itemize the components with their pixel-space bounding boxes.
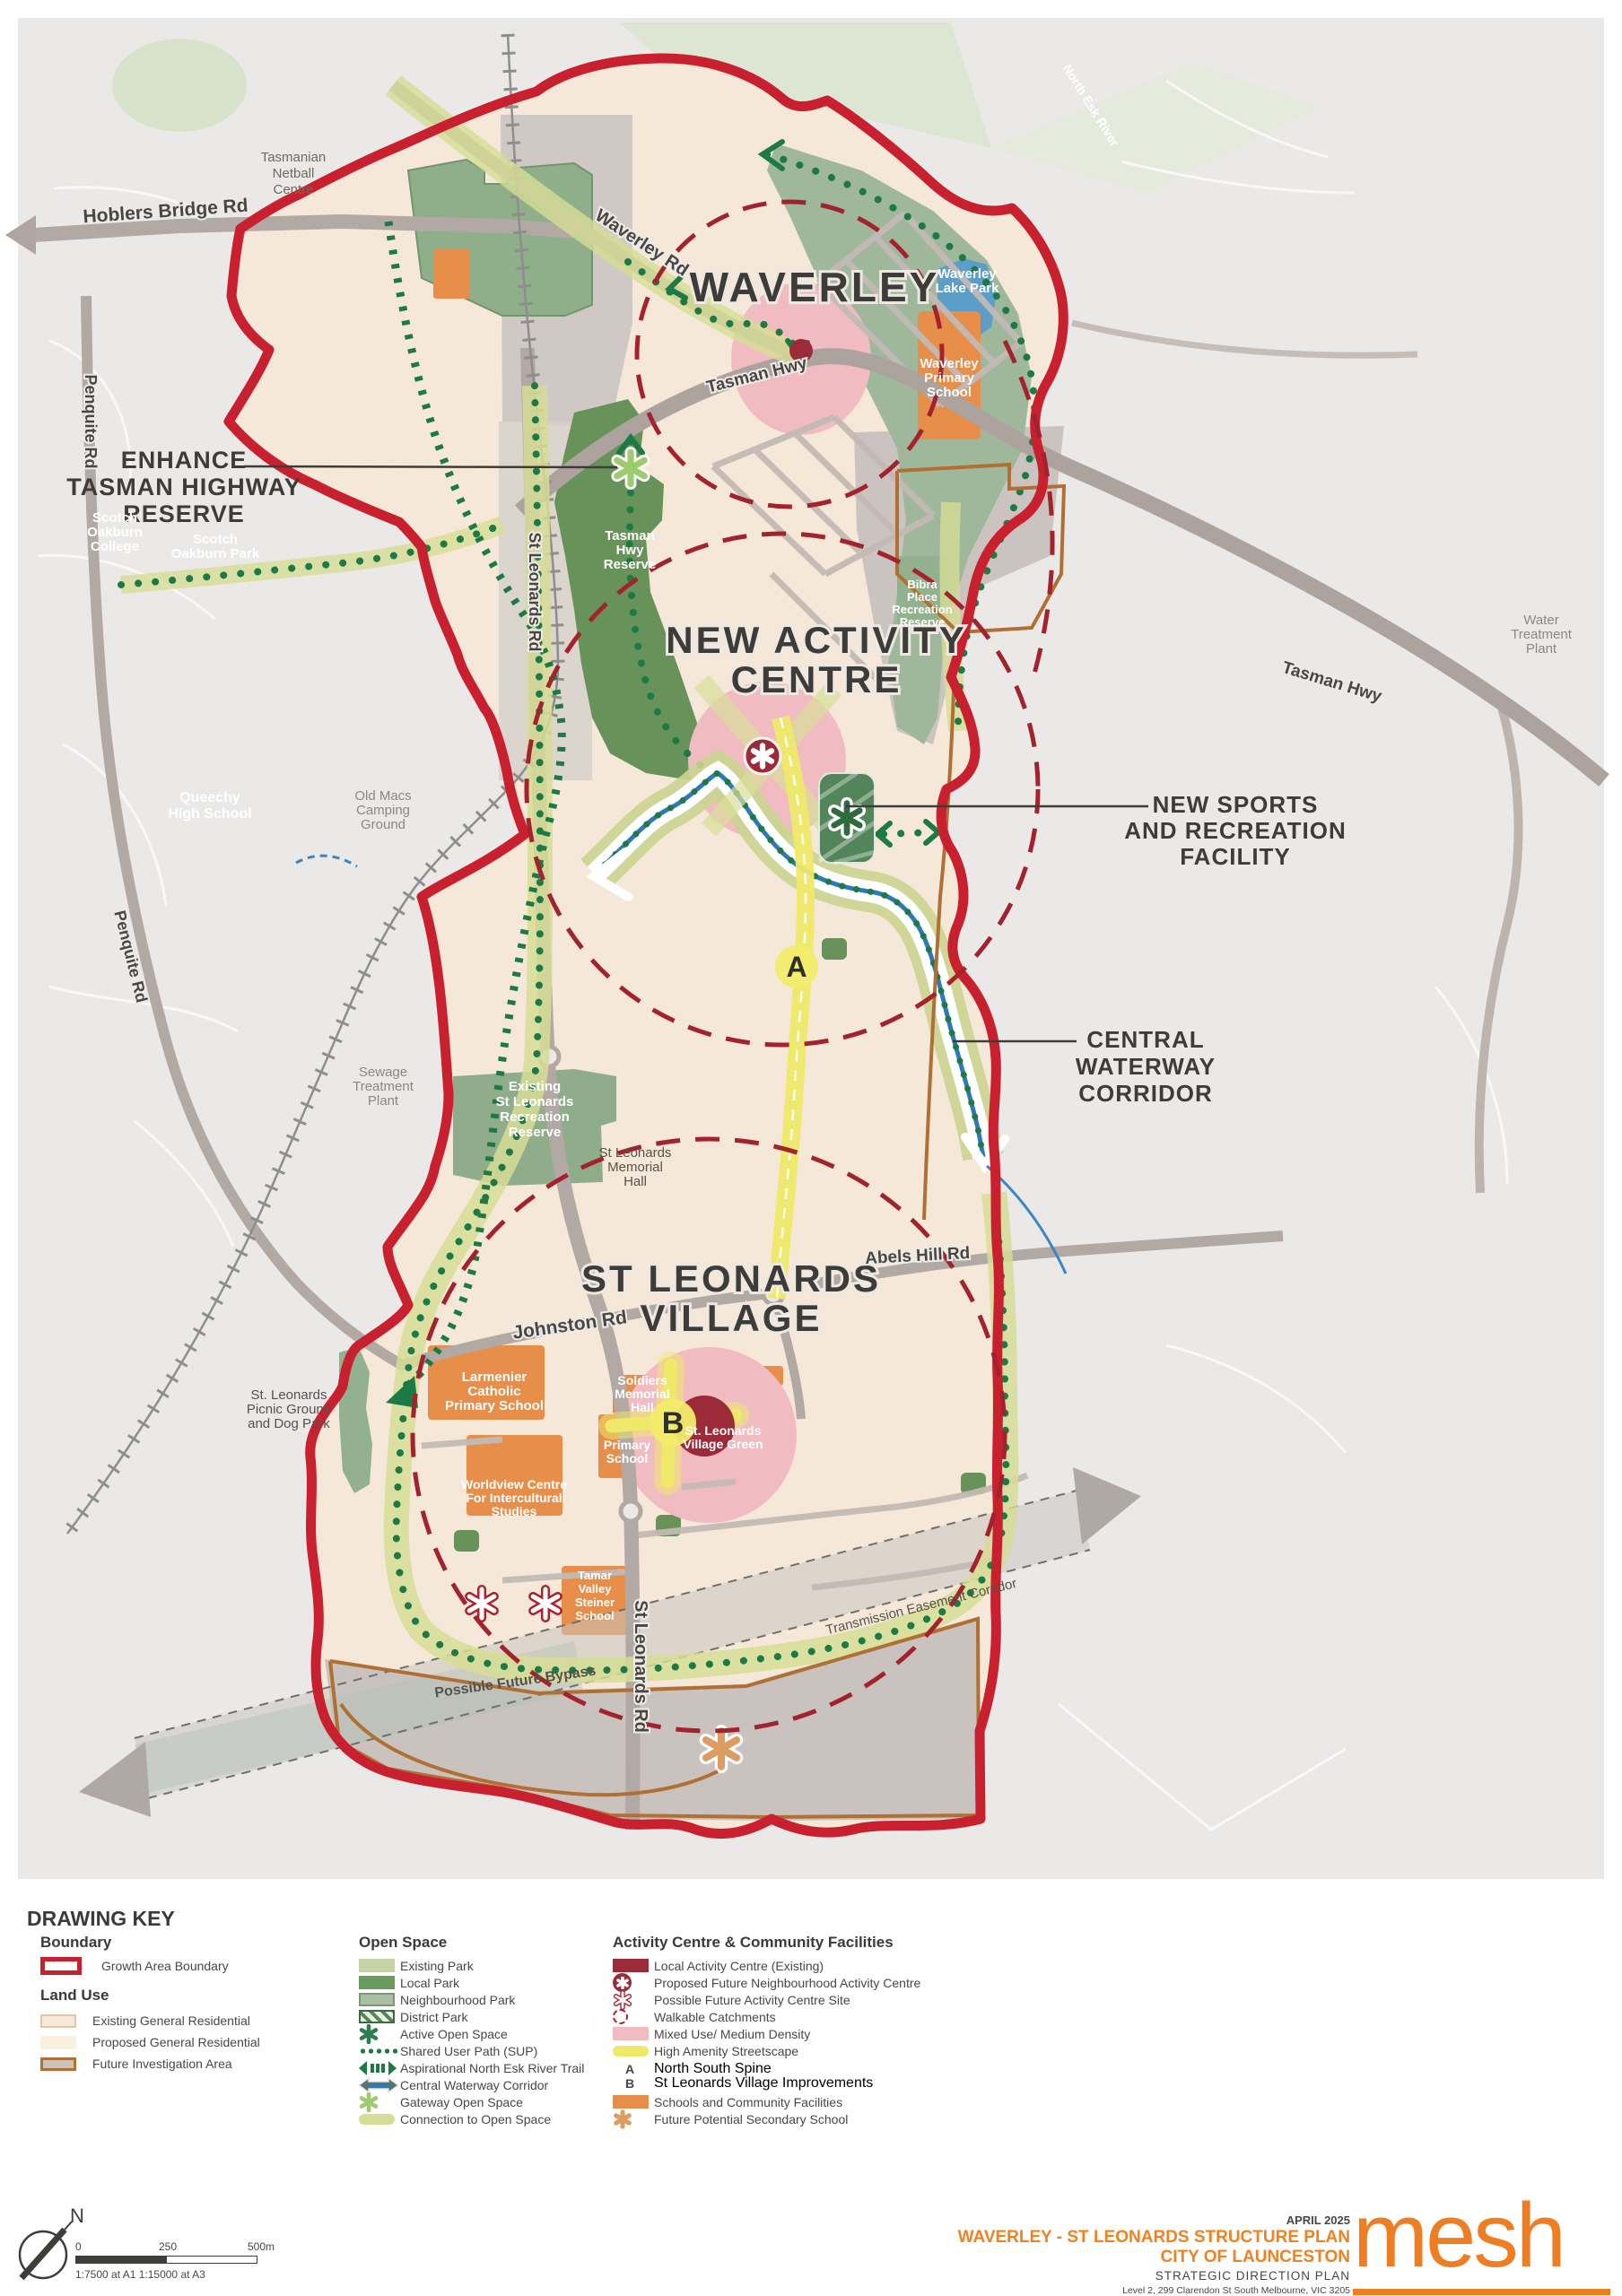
netball-centre-label: Tasmanian bbox=[261, 150, 327, 165]
central-waterway-callout: CORRIDOR bbox=[1078, 1080, 1213, 1107]
tasman-hwy-reserve-label: Reserve bbox=[604, 557, 656, 572]
scale-bar: 0 250 500m 1:7500 at A1 1:15000 at A3 bbox=[75, 2240, 282, 2281]
waverley-lake-park-label: Lake Park bbox=[936, 281, 1000, 296]
legend-label: Local Park bbox=[400, 1976, 459, 1990]
picnic-ground-label: St. Leonards bbox=[250, 1387, 327, 1403]
village-green-label: St. Leonards bbox=[685, 1423, 762, 1438]
waverley-primary-school-label: Primary bbox=[924, 370, 975, 386]
waverley-primary-school-label: School bbox=[927, 385, 972, 400]
tamar-steiner-label: School bbox=[575, 1609, 614, 1622]
possible-activity-site-icon bbox=[613, 1990, 654, 2010]
legend-label: Mixed Use/ Medium Density bbox=[654, 2027, 810, 2041]
worldview-centre-label: Studies bbox=[492, 1504, 537, 1518]
legend-row: Central Waterway Corridor bbox=[359, 2076, 628, 2093]
legend-row: Future Investigation Area bbox=[40, 2053, 336, 2074]
neighbourhood-park-swatch bbox=[359, 1993, 400, 2006]
netball-centre-label: Centre bbox=[273, 182, 313, 197]
existing-residential-swatch bbox=[40, 2014, 82, 2028]
future-investigation-swatch bbox=[40, 2057, 82, 2071]
scale-250: 250 bbox=[159, 2240, 177, 2253]
scotch-oakburn-college-label: Oakburn bbox=[87, 525, 143, 540]
future-secondary-school-marker bbox=[706, 1731, 737, 1767]
title-block: APRIL 2025 WAVERLEY - ST LEONARDS STRUCT… bbox=[958, 2213, 1350, 2296]
village-green-label: Village Green bbox=[683, 1437, 763, 1451]
legend-label: District Park bbox=[400, 2010, 467, 2024]
legend-row: Connection to Open Space bbox=[359, 2110, 628, 2127]
old-macs-label: Ground bbox=[361, 817, 405, 832]
legend-row: Aspirational North Esk River Trail bbox=[359, 2059, 628, 2076]
legend-label: Future Potential Secondary School bbox=[654, 2112, 848, 2126]
legend-boundary-landuse-column: Boundary Growth Area Boundary Land Use E… bbox=[40, 1926, 336, 2074]
marker-b: B bbox=[662, 1406, 685, 1440]
legend-label: St Leonards Village Improvements bbox=[654, 2075, 873, 2092]
existing-park-swatch bbox=[359, 1959, 400, 1972]
legend-label: Connection to Open Space bbox=[400, 2112, 551, 2126]
legend-label: Gateway Open Space bbox=[400, 2095, 523, 2109]
sewage-plant-label: Sewage bbox=[359, 1065, 407, 1080]
legend-row: Shared User Path (SUP) bbox=[359, 2042, 628, 2059]
legend-row: Gateway Open Space bbox=[359, 2093, 628, 2110]
mesh-address: Level 2, 299 Clarendon St South Melbourn… bbox=[958, 2285, 1350, 2296]
larmenier-label: Catholic bbox=[467, 1384, 520, 1399]
scale-bar-graphic bbox=[75, 2256, 257, 2264]
worldview-centre-label: Worldview Centre bbox=[461, 1477, 567, 1492]
waverley-title: WAVERLEY bbox=[690, 264, 940, 310]
legend-label: Neighbourhood Park bbox=[400, 1993, 515, 2007]
plan-title: WAVERLEY - ST LEONARDS STRUCTURE PLAN bbox=[958, 2228, 1350, 2248]
activity-section-title: Activity Centre & Community Facilities bbox=[613, 1934, 990, 1952]
legend-row: High Amenity Streetscape bbox=[613, 2042, 990, 2059]
old-macs-label: Old Macs bbox=[354, 788, 411, 804]
memorial-hall-label: Memorial bbox=[607, 1160, 663, 1175]
active-open-space-icon bbox=[359, 2024, 400, 2044]
spine-key-b: B bbox=[613, 2076, 654, 2091]
north-label: N bbox=[70, 2205, 84, 2227]
shared-user-path-icon bbox=[359, 2048, 400, 2055]
gateway-open-space-marker bbox=[617, 452, 644, 483]
legend-row: Mixed Use/ Medium Density bbox=[613, 2025, 990, 2042]
proposed-residential-swatch bbox=[40, 2036, 82, 2049]
larmenier-label: Primary School bbox=[445, 1398, 544, 1413]
legend-label: Aspirational North Esk River Trail bbox=[400, 2061, 584, 2075]
scotch-oakburn-college-label: College bbox=[91, 539, 139, 554]
st-leonards-rd-label: St Leonards Rd bbox=[631, 1600, 650, 1733]
larmenier-label: Larmenier bbox=[462, 1370, 528, 1385]
sewage-plant-label: Plant bbox=[368, 1093, 399, 1109]
queechy-high-school-label: High School bbox=[168, 806, 251, 822]
picnic-ground-label: Picnic Ground bbox=[247, 1402, 331, 1417]
picnic-ground-label: and Dog Park bbox=[248, 1416, 330, 1431]
legend-label: Growth Area Boundary bbox=[82, 1959, 229, 1973]
new-sports-callout: AND RECREATION bbox=[1124, 817, 1347, 844]
district-park-swatch bbox=[359, 2010, 400, 2023]
legend-row: Existing Park bbox=[359, 1957, 628, 1974]
north-esk-trail-icon bbox=[359, 2061, 400, 2075]
scale-ratio: 1:7500 at A1 1:15000 at A3 bbox=[75, 2268, 282, 2281]
rec-reserve-label: Reserve bbox=[509, 1125, 561, 1140]
growth-area-boundary-swatch bbox=[40, 1957, 82, 1975]
bibra-place-label: Bibra bbox=[907, 578, 937, 591]
legend-row: Existing General Residential bbox=[40, 2010, 336, 2031]
enhance-callout: ENHANCE bbox=[121, 447, 248, 474]
rec-reserve-label: Recreation bbox=[500, 1109, 570, 1125]
mesh-logo: mesh bbox=[1353, 2196, 1610, 2277]
marker-a: A bbox=[786, 951, 807, 983]
legend-subrow: B St Leonards Village Improvements bbox=[613, 2076, 990, 2091]
legend-label: Existing General Residential bbox=[82, 2013, 250, 2028]
tasman-hwy-reserve-label: Tasman bbox=[605, 528, 655, 544]
legend-row: Local Park bbox=[359, 1974, 628, 1991]
legend-row: Possible Future Activity Centre Site bbox=[613, 1991, 990, 2008]
new-activity-centre-title: CENTRE bbox=[731, 658, 903, 700]
legend-label: Local Activity Centre (Existing) bbox=[654, 1959, 824, 1973]
gateway-open-space-icon bbox=[359, 2092, 400, 2112]
primary-school-label: School bbox=[606, 1451, 649, 1465]
scale-500: 500m bbox=[248, 2240, 275, 2253]
legend-label: Proposed Future Neighbourhood Activity C… bbox=[654, 1976, 920, 1990]
scotch-oakburn-college-label: Scotch bbox=[92, 510, 137, 526]
tamar-steiner-label: Valley bbox=[579, 1582, 613, 1596]
connection-open-space-icon bbox=[359, 2114, 400, 2125]
new-sports-callout: FACILITY bbox=[1180, 843, 1291, 870]
legend-label: High Amenity Streetscape bbox=[654, 2044, 798, 2058]
walkable-catchments-icon bbox=[613, 2009, 654, 2024]
memorial-hall-label: St Leonards bbox=[599, 1145, 672, 1161]
soldiers-hall-label: Memorial bbox=[615, 1387, 669, 1401]
primary-school-label: Primary bbox=[604, 1438, 650, 1452]
penquite-rd-label: Penquite Rd bbox=[82, 374, 100, 468]
legend-row: District Park bbox=[359, 2008, 628, 2025]
legend-row: Neighbourhood Park bbox=[359, 1991, 628, 2008]
water-plant-label: Plant bbox=[1526, 641, 1557, 657]
proposed-neighbourhood-activity-centre bbox=[745, 738, 780, 774]
boundary-section-title: Boundary bbox=[40, 1934, 336, 1952]
spine-key-a: A bbox=[613, 2062, 654, 2076]
legend-label: Shared User Path (SUP) bbox=[400, 2044, 537, 2058]
rec-reserve-label: Existing bbox=[509, 1079, 561, 1094]
enhance-callout: RESERVE bbox=[123, 500, 245, 527]
future-secondary-school-icon bbox=[613, 2109, 654, 2129]
legend-label: Schools and Community Facilities bbox=[654, 2095, 842, 2109]
bibra-place-label: Reserve bbox=[900, 615, 946, 629]
bibra-place-label: Recreation bbox=[892, 603, 952, 616]
st-leonards-village-title: ST LEONARDS bbox=[581, 1257, 881, 1300]
local-park-swatch bbox=[359, 1976, 400, 1989]
legend-label: Possible Future Activity Centre Site bbox=[654, 1993, 850, 2007]
structure-plan-page: A B WAVERLEY NEW ACTIVITY CENTRE ST LEON… bbox=[0, 0, 1622, 2296]
legend-label: Proposed General Residential bbox=[82, 2035, 260, 2049]
new-sports-callout: NEW SPORTS bbox=[1153, 791, 1319, 818]
mixed-use-swatch bbox=[613, 2027, 654, 2040]
legend-row: Schools and Community Facilities bbox=[613, 2093, 990, 2110]
netball-centre-label: Netball bbox=[273, 166, 315, 181]
queechy-high-school-label: Queechy bbox=[179, 790, 240, 805]
water-plant-label: Treatment bbox=[1511, 627, 1573, 642]
tamar-steiner-label: Steiner bbox=[575, 1596, 615, 1609]
legend-label: Central Waterway Corridor bbox=[400, 2078, 548, 2092]
legend-label: Walkable Catchments bbox=[654, 2010, 776, 2024]
legend-open-space-column: Open Space Existing Park Local Park Neig… bbox=[359, 1926, 628, 2127]
waverley-lake-park-label: Waverley bbox=[937, 266, 997, 282]
district-park-new-sports bbox=[819, 773, 875, 863]
st-leonards-rd-label: St Leonards Rd bbox=[526, 532, 544, 651]
soldiers-hall-label: Hall bbox=[631, 1400, 654, 1414]
plan-client: CITY OF LAUNCESTON bbox=[958, 2248, 1350, 2267]
legend-row: Walkable Catchments bbox=[613, 2008, 990, 2025]
sewage-plant-label: Treatment bbox=[353, 1079, 414, 1094]
open-space-section-title: Open Space bbox=[359, 1934, 628, 1952]
footer: N 0 250 500m 1:7500 at A1 1:15000 at A3 … bbox=[0, 2188, 1622, 2296]
waverley-primary-school-label: Waverley bbox=[920, 356, 979, 371]
legend-row: Growth Area Boundary bbox=[40, 1957, 336, 1974]
st-leonards-village-title: VILLAGE bbox=[640, 1297, 822, 1339]
legend-row: Proposed Future Neighbourhood Activity C… bbox=[613, 1974, 990, 1991]
high-amenity-streetscape-icon bbox=[613, 2046, 654, 2057]
drawing-key: DRAWING KEY Boundary Growth Area Boundar… bbox=[0, 1891, 1622, 2187]
soldiers-hall-label: Soldiers bbox=[617, 1373, 667, 1387]
legend-subrow: A North South Spine bbox=[613, 2062, 990, 2076]
legend-row: Proposed General Residential bbox=[40, 2031, 336, 2053]
tamar-steiner-label: Tamar bbox=[578, 1569, 612, 1582]
old-macs-label: Camping bbox=[356, 803, 410, 818]
central-waterway-callout: CENTRAL bbox=[1086, 1026, 1204, 1053]
worldview-centre-label: For Intercultural bbox=[466, 1491, 562, 1505]
legend-row: Future Potential Secondary School bbox=[613, 2110, 990, 2127]
plan-subtitle: STRATEGIC DIRECTION PLAN bbox=[958, 2269, 1350, 2284]
legend-label: Active Open Space bbox=[400, 2027, 508, 2041]
land-use-section-title: Land Use bbox=[40, 1987, 336, 2005]
scotch-oakburn-park-label: Scotch bbox=[193, 532, 238, 547]
memorial-hall-label: Hall bbox=[624, 1174, 647, 1189]
water-plant-label: Water bbox=[1523, 613, 1558, 628]
central-waterway-icon bbox=[359, 2077, 400, 2093]
plan-date: APRIL 2025 bbox=[958, 2213, 1350, 2228]
scotch-oakburn-park-label: Oakburn Park bbox=[171, 546, 260, 561]
legend-label: Future Investigation Area bbox=[82, 2057, 232, 2071]
legend-label: Existing Park bbox=[400, 1959, 474, 1973]
legend-activity-column: Activity Centre & Community Facilities L… bbox=[613, 1926, 990, 2127]
scale-0: 0 bbox=[75, 2240, 82, 2253]
central-waterway-callout: WATERWAY bbox=[1076, 1053, 1216, 1080]
bibra-place-label: Place bbox=[907, 590, 937, 604]
rec-reserve-label: St Leonards bbox=[496, 1094, 574, 1109]
schools-facilities-swatch bbox=[613, 2095, 654, 2109]
local-activity-centre-swatch bbox=[613, 1959, 654, 1972]
legend-row: Active Open Space bbox=[359, 2025, 628, 2042]
mesh-logo-bar bbox=[1353, 2289, 1610, 2295]
legend-row: Local Activity Centre (Existing) bbox=[613, 1957, 990, 1974]
tasman-hwy-reserve-label: Hwy bbox=[616, 543, 645, 558]
enhance-callout: TASMAN HIGHWAY bbox=[66, 474, 301, 500]
